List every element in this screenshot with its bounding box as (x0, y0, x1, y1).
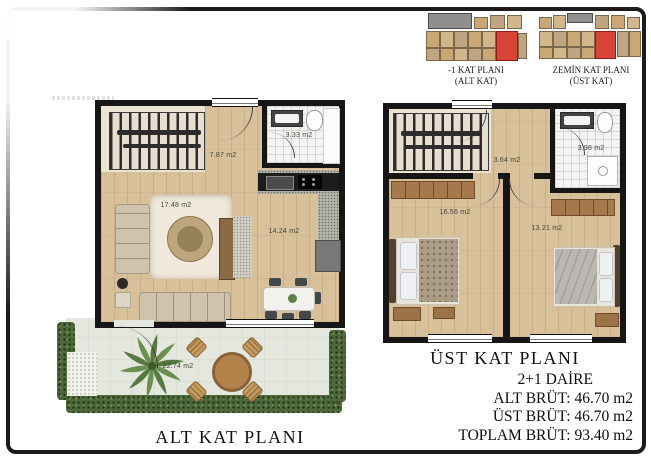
key-plan-lower: -1 KAT PLANI (ALT KAT) (424, 11, 528, 85)
entrance-door-arc (219, 107, 253, 141)
key-plan-unit-cell (440, 48, 454, 61)
scan-fade (0, 10, 16, 310)
interior-wall (389, 173, 473, 179)
upper-hall-area-label: 3.64 m2 (479, 157, 535, 164)
key-plan-unit-cell (468, 48, 482, 61)
bedroom-bench (595, 313, 619, 327)
lower-bathroom: 3.33 m2 (262, 106, 339, 168)
key-plan-unit-cell (490, 15, 505, 29)
pillow (400, 242, 417, 270)
toplam-brut: TOPLAM BRÜT: 93.40 m2 (353, 427, 633, 446)
kitchen-side-counter (318, 194, 339, 240)
kitchen-sink (266, 176, 294, 190)
terrace-gravel-patch (67, 352, 97, 396)
pillow (400, 272, 417, 300)
unit-type: 2+1 DAİRE (353, 371, 633, 390)
upper-bathroom: 3.98 m2 (550, 109, 620, 193)
key-plan-unit-cell (468, 31, 482, 48)
key-plan-unit-cell (539, 47, 553, 59)
key-plan-unit-cell (507, 15, 522, 29)
toilet (306, 110, 323, 131)
bedroom2-door-arc (509, 179, 536, 206)
stair-rail (123, 144, 201, 148)
duvet (419, 239, 458, 302)
stair-rail (117, 130, 201, 135)
bed-double (396, 237, 460, 305)
bathroom-sink (271, 110, 303, 127)
bed-double (553, 247, 615, 307)
key-plan-unit-cell (617, 31, 629, 57)
key-plan-unit-cell (539, 17, 552, 29)
upper-plan-label: ÜST KAT PLANI (405, 348, 605, 369)
bathroom-sink (560, 112, 594, 129)
sofa-corner (115, 204, 150, 274)
lower-plan-label: ALT KAT PLANI (130, 427, 330, 448)
ust-brut: ÜST BRÜT: 46.70 m2 (353, 408, 633, 427)
kitchen-dining-area-label: 14.24 m2 (251, 228, 317, 235)
hall-area-label: 7.87 m2 (193, 152, 253, 159)
upper-floor-unit: 3.64 m2 3.98 m2 16.56 m2 13.21 m2 (383, 103, 626, 343)
key-plan-highlight-unit (496, 31, 518, 61)
bedroom-bench (433, 307, 455, 319)
key-plan-unit-cell (539, 31, 553, 47)
bedroom1-area-label: 16.56 m2 (425, 209, 485, 216)
unit-summary: 2+1 DAİRE ALT BRÜT: 46.70 m2 ÜST BRÜT: 4… (353, 371, 633, 445)
window (212, 98, 258, 107)
table-plant (288, 294, 297, 303)
key-plan-unit-cell (474, 17, 488, 29)
wardrobe (391, 181, 475, 199)
lower-floor-unit: 7.87 m2 3.33 m2 17.48 m2 (95, 100, 345, 328)
shower-tray (587, 156, 618, 186)
key-plan-highlight-unit (595, 31, 616, 59)
window (530, 334, 592, 343)
key-plan-unit-cell (627, 17, 640, 29)
shower-area (323, 108, 340, 164)
key-plan-unit-cell (454, 48, 468, 61)
pillow (599, 252, 613, 276)
scan-fade (0, 0, 190, 40)
living-area-label: 17.48 m2 (141, 202, 211, 209)
duvet (555, 249, 597, 304)
key-plan-unit-cell (553, 47, 567, 59)
key-plan-unit-cell (426, 48, 440, 61)
toilet (597, 112, 613, 133)
dining-chair (269, 278, 281, 286)
sofa (139, 292, 231, 322)
bed-headboard (389, 239, 396, 303)
key-plan-unit-cell (440, 31, 454, 48)
side-table (115, 292, 131, 308)
key-plan-unit-cell (454, 31, 468, 48)
key-plan-unit-cell (553, 15, 566, 29)
bedroom1-door-arc (473, 179, 500, 206)
staircase (109, 112, 205, 170)
dining-chair (299, 311, 311, 319)
upper-bathroom-area-label: 3.98 m2 (569, 145, 613, 152)
stair-rail (405, 145, 481, 149)
floor-plan-sheet: -1 KAT PLANI (ALT KAT) ZEMİN KAT PLANI (… (0, 0, 651, 460)
key-plan-lower-title: -1 KAT PLANI (424, 65, 528, 76)
key-plan-unit-cell (426, 31, 440, 48)
window (428, 334, 492, 343)
key-plan-unit-cell (482, 48, 496, 61)
key-plan-upper: ZEMİN KAT PLANI (ÜST KAT) (537, 11, 645, 85)
interior-wall (534, 173, 550, 179)
terrace-hedge-bottom (66, 395, 342, 413)
key-plan-upper-subtitle: (ÜST KAT) (537, 76, 645, 87)
pillow (599, 278, 613, 302)
floor-lamp (117, 278, 128, 289)
alt-brut: ALT BRÜT: 46.70 m2 (353, 390, 633, 409)
kitchen-island-counter (233, 216, 252, 278)
dining-chair (295, 278, 307, 286)
key-plan-roof-block (567, 13, 593, 23)
key-plan-upper-title: ZEMİN KAT PLANI (537, 65, 645, 76)
terrace-hedge-right (329, 330, 346, 402)
bathroom-area-label: 3.33 m2 (277, 132, 321, 139)
key-plan-lower-subtitle: (ALT KAT) (424, 76, 528, 87)
cooktop (298, 175, 322, 189)
window (226, 319, 314, 328)
key-plan-unit-cell (629, 31, 641, 57)
dining-table (263, 287, 315, 311)
coffee-table (167, 216, 213, 262)
dining-chair (265, 311, 277, 319)
key-plan-roof-block (428, 13, 472, 29)
bedroom2-area-label: 13.21 m2 (517, 225, 577, 232)
key-plan-unit-cell (567, 31, 581, 47)
key-plan-unit-cell (482, 31, 496, 48)
key-plan-unit-cell (581, 47, 595, 59)
key-plan-unit-cell (595, 15, 609, 29)
key-plan-unit-cell (518, 33, 527, 59)
key-plan-unit-cell (553, 31, 567, 47)
fridge (315, 240, 341, 272)
interior-wall (503, 173, 510, 337)
window (452, 100, 492, 109)
bedroom-bench (393, 307, 421, 321)
wardrobe (551, 199, 615, 216)
key-plan-unit-cell (567, 47, 581, 59)
key-plan-unit-cell (581, 31, 595, 47)
key-plan-unit-cell (611, 15, 625, 29)
terrace-area-label: 22.74 m2 (148, 363, 208, 370)
